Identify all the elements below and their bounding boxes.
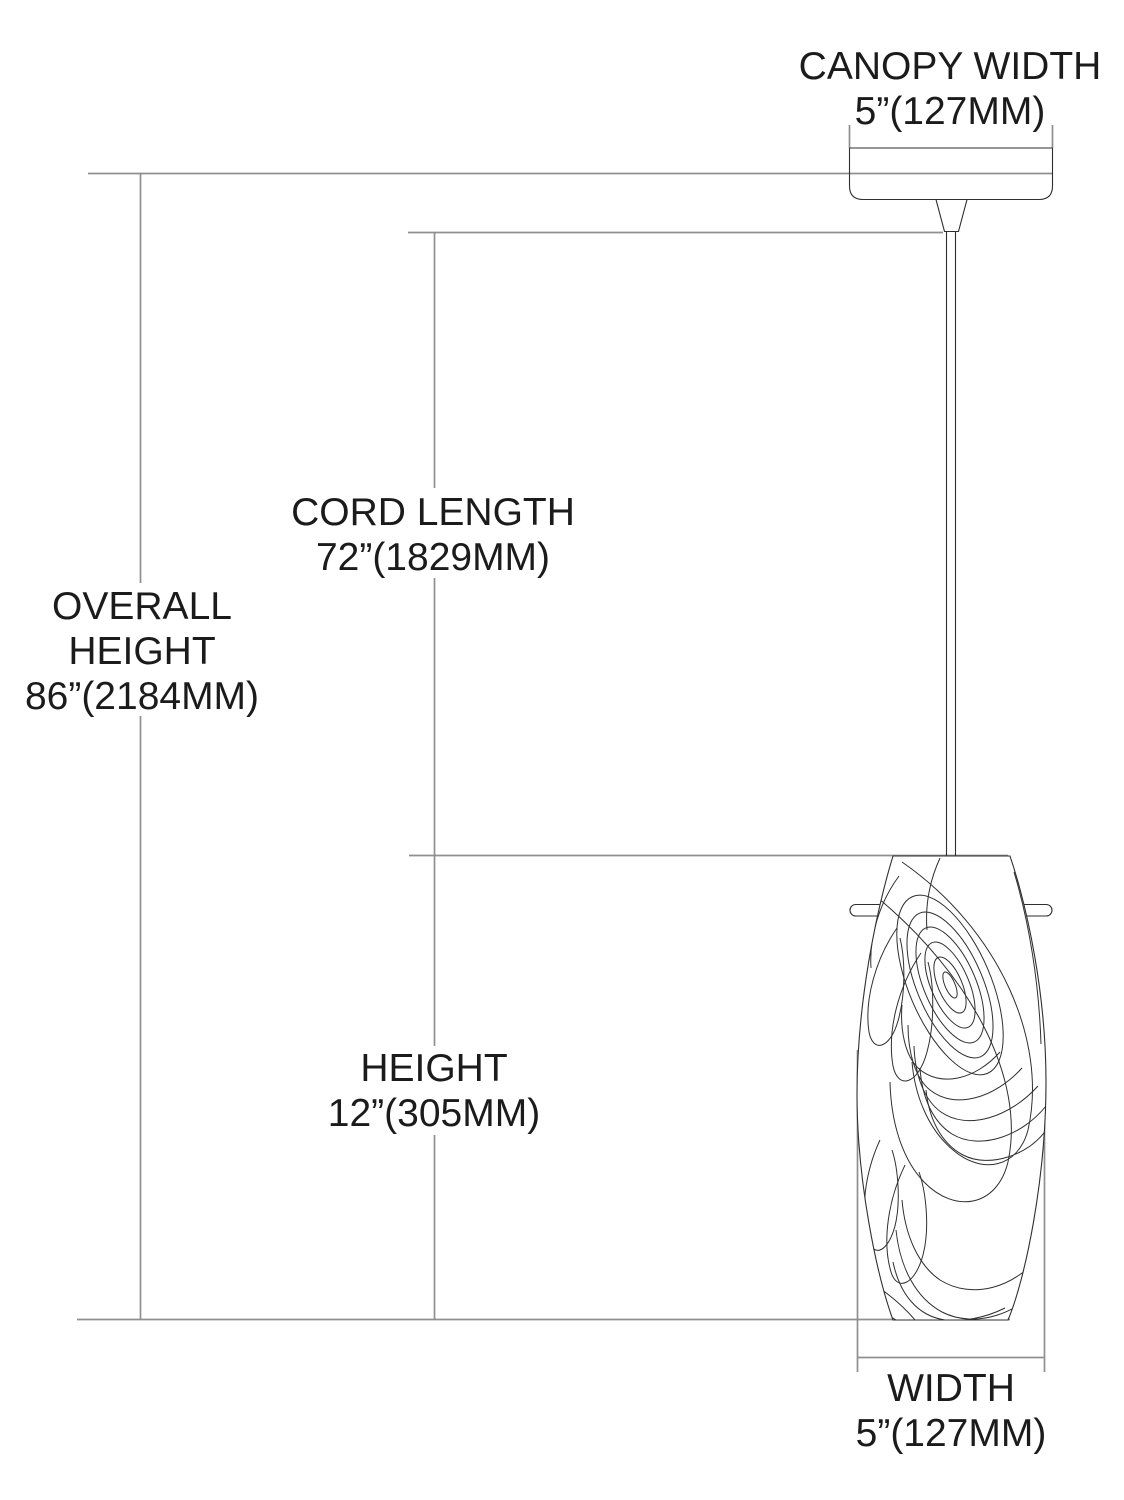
canopy-width-value: 5”(127MM) [795, 89, 1105, 134]
cord-length-value: 72”(1829MM) [283, 535, 583, 580]
line-drawing [0, 0, 1124, 1500]
overall-height-value: 86”(2184MM) [17, 674, 267, 719]
shade-height-label-text: HEIGHT [309, 1046, 559, 1091]
shade-height-value: 12”(305MM) [309, 1091, 559, 1136]
strain-relief-cone [936, 200, 967, 232]
shade-width-label: WIDTH 5”(127MM) [826, 1366, 1076, 1456]
shade-width-value: 5”(127MM) [826, 1411, 1076, 1456]
fixture-drawing [850, 148, 1053, 1321]
overall-height-label-line1: OVERALL [17, 584, 267, 629]
cord-length-label-text: CORD LENGTH [283, 490, 583, 535]
pendant-dimension-diagram: CANOPY WIDTH 5”(127MM) CORD LENGTH 72”(1… [0, 0, 1124, 1500]
overall-height-label-line2: HEIGHT [17, 629, 267, 674]
canopy-width-label-text: CANOPY WIDTH [795, 44, 1105, 89]
shade-body-fill [857, 856, 1046, 1320]
canopy-width-label: CANOPY WIDTH 5”(127MM) [795, 44, 1105, 134]
cord-length-label: CORD LENGTH 72”(1829MM) [283, 490, 583, 580]
shade-width-label-text: WIDTH [826, 1366, 1076, 1411]
shade-height-label: HEIGHT 12”(305MM) [309, 1046, 559, 1136]
overall-height-label: OVERALL HEIGHT 86”(2184MM) [17, 584, 267, 719]
